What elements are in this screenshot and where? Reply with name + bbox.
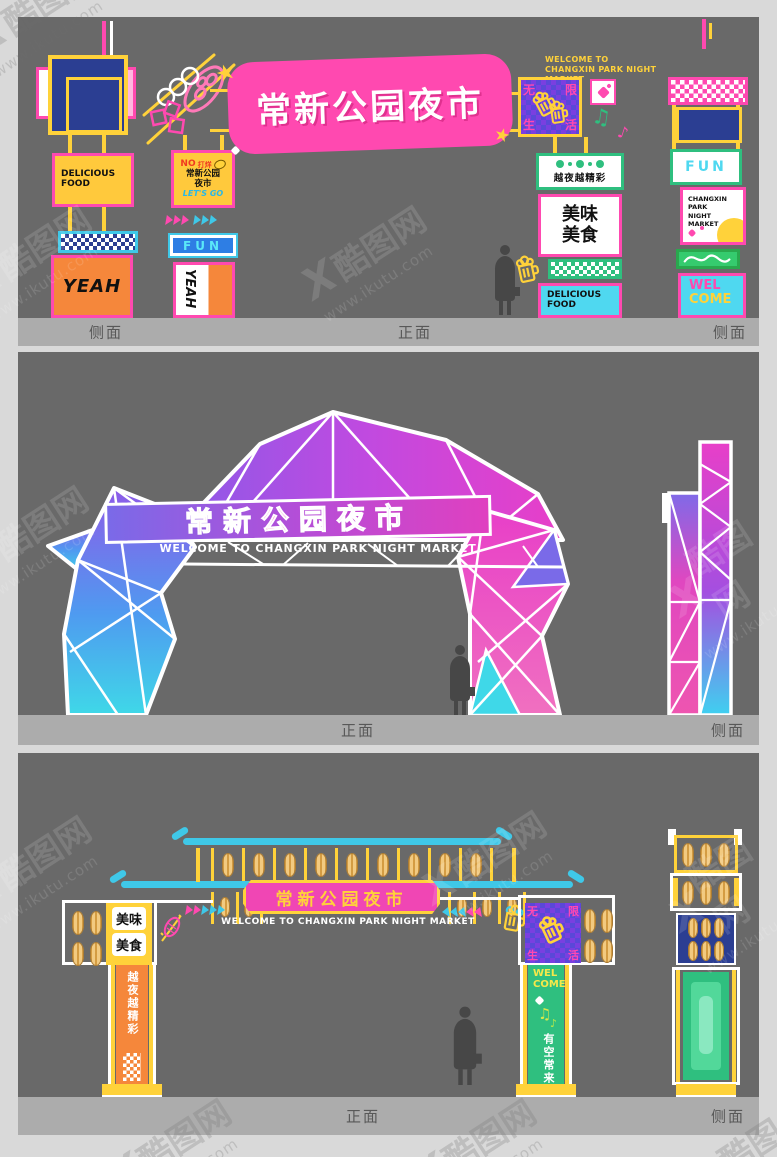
shaft-stripe bbox=[149, 965, 153, 1085]
sign-label: FUN bbox=[685, 159, 727, 175]
sign-label: 活 bbox=[568, 947, 579, 963]
side-green-column bbox=[672, 967, 740, 1085]
plaque-title-sign: 常新公园夜市 bbox=[243, 880, 440, 914]
pillar-base bbox=[516, 1084, 576, 1097]
wuxian-shenghuo-sign: 无 限 生 活 bbox=[518, 77, 582, 137]
plaque-subtitle: WELCOME TO CHANGXIN PARK NIGHT MARKET bbox=[198, 917, 498, 927]
lantern-icon bbox=[315, 853, 327, 877]
banner-label: 越夜越精彩 bbox=[124, 971, 140, 1036]
checker-sign bbox=[668, 77, 748, 105]
welcome-sign: WEL COME bbox=[678, 273, 746, 318]
dot-icon bbox=[700, 226, 704, 230]
sign-label: 无 bbox=[527, 903, 538, 919]
beam bbox=[440, 897, 520, 900]
dot-icon bbox=[596, 160, 604, 168]
pole bbox=[220, 135, 224, 151]
sign-label: 美味 bbox=[562, 205, 598, 226]
watermark-x-icon: X bbox=[0, 860, 11, 919]
sign-label: 生 bbox=[523, 116, 535, 133]
lantern-icon bbox=[584, 939, 596, 963]
checker-strip bbox=[58, 231, 138, 253]
lantern-icon bbox=[688, 918, 698, 938]
lantern-icon bbox=[584, 909, 596, 933]
lantern-icon bbox=[408, 853, 420, 877]
sign-label: DELICIOUS FOOD bbox=[61, 170, 121, 190]
welcome-banner: WEL COME ♫ ♪ 有空常来 bbox=[528, 965, 564, 1085]
watermark-x-icon: X bbox=[402, 1143, 456, 1157]
person-silhouette bbox=[495, 245, 515, 315]
lantern-cell bbox=[242, 848, 273, 884]
meiwei-banner: 美味 美食 bbox=[106, 903, 152, 965]
lantern-icon bbox=[700, 881, 712, 905]
dot-icon bbox=[588, 162, 592, 166]
sign-label: CHANGXIN bbox=[688, 195, 743, 203]
music-note-icon: ♪ bbox=[550, 1017, 557, 1030]
view-label-front: 正面 bbox=[346, 1106, 380, 1127]
view-label-front: 正面 bbox=[398, 322, 432, 343]
sign-label: NIGHT MARKET bbox=[688, 212, 743, 229]
shaft-stripe bbox=[523, 965, 527, 1085]
lantern-icon bbox=[682, 881, 694, 905]
arch-drawing: 常新公园夜市 WELCOME TO CHANGXIN PARK NIGHT MA… bbox=[18, 352, 759, 715]
lantern-icon bbox=[682, 843, 694, 867]
lantern-icon bbox=[718, 881, 730, 905]
sparkle-icon bbox=[688, 229, 696, 237]
pole bbox=[183, 135, 187, 151]
beam bbox=[157, 900, 213, 903]
design-board: DELICIOUS FOOD YEAH bbox=[0, 0, 777, 1157]
yueye-banner: 越夜越精彩 bbox=[116, 965, 148, 1085]
person-silhouette bbox=[454, 1007, 476, 1085]
sign-label: PARK bbox=[688, 203, 743, 211]
lantern-icon bbox=[90, 942, 102, 966]
lantern-cell bbox=[335, 848, 366, 884]
squiggle-strip bbox=[676, 249, 740, 269]
wave-icon bbox=[681, 253, 735, 266]
lantern-icon bbox=[482, 897, 492, 917]
fun-sign: FUN bbox=[168, 233, 238, 258]
no-dayang-sign: NO 打烊 常新公园 夜市 LET'S GO bbox=[171, 150, 235, 208]
yeah-vertical-sign: YEAH bbox=[173, 262, 235, 318]
lantern-icon bbox=[470, 853, 482, 877]
dot-icon bbox=[576, 160, 584, 168]
roof-tier1 bbox=[183, 838, 501, 845]
dot-icon bbox=[556, 160, 564, 168]
sign-label: DELICIOUS FOOD bbox=[547, 291, 609, 311]
checker-deco bbox=[123, 1053, 141, 1081]
sign-label: YEAH bbox=[63, 276, 121, 297]
lantern-icon bbox=[601, 909, 613, 933]
lantern-icon bbox=[714, 918, 724, 938]
lantern-grid bbox=[72, 911, 108, 967]
lantern-grid bbox=[584, 909, 618, 965]
lantern-icon bbox=[439, 853, 451, 877]
beer-mug-icon bbox=[533, 911, 571, 953]
pole bbox=[68, 135, 72, 155]
lantern-icon bbox=[718, 843, 730, 867]
arrow-chevrons bbox=[165, 215, 218, 225]
watermark-x-icon: X bbox=[0, 5, 16, 64]
dots-row bbox=[556, 160, 604, 168]
sign-label: 限 bbox=[568, 903, 579, 919]
sign-label: LET'S GO bbox=[183, 189, 223, 198]
wuxian-shenghuo-sign: 无 限 生 活 bbox=[525, 903, 581, 963]
view-label-side: 侧面 bbox=[89, 322, 123, 343]
lantern-icon bbox=[90, 911, 102, 935]
panel-top-pop-gate: DELICIOUS FOOD YEAH bbox=[18, 17, 759, 318]
lantern-icon bbox=[346, 853, 358, 877]
lantern-icon bbox=[701, 918, 711, 938]
pole bbox=[102, 207, 106, 231]
arrow-chevrons bbox=[441, 907, 482, 917]
shaft-stripe bbox=[673, 878, 678, 906]
blue-billboard-inner bbox=[66, 77, 122, 133]
lantern-icon bbox=[72, 911, 84, 935]
side-blue-box bbox=[676, 913, 736, 965]
shaft-stripe bbox=[111, 965, 115, 1085]
sign-label: 越夜越精彩 bbox=[554, 170, 607, 184]
sparkle-icon bbox=[606, 83, 612, 89]
side-roof-box1 bbox=[674, 835, 738, 873]
lantern-cell bbox=[397, 848, 428, 884]
title-label: 常新公园夜市 bbox=[276, 885, 408, 910]
view-label-side: 侧面 bbox=[713, 322, 747, 343]
watermark-x-icon: X bbox=[97, 1143, 151, 1157]
chevron-icon bbox=[209, 215, 218, 225]
lantern-icon bbox=[601, 939, 613, 963]
pole bbox=[709, 23, 712, 39]
view-label-side: 侧面 bbox=[711, 1106, 745, 1127]
pillar-base bbox=[102, 1084, 162, 1097]
lantern-cell bbox=[428, 848, 459, 884]
welcome-line: WELCOME TO bbox=[545, 55, 695, 65]
banner-label: WEL bbox=[533, 969, 564, 980]
pole bbox=[584, 137, 588, 153]
yueye-sign: 越夜越精彩 bbox=[536, 153, 624, 190]
caption-strip-2: 正面 侧面 bbox=[18, 715, 759, 745]
banner-label: 美食 bbox=[112, 933, 146, 956]
checker-strip bbox=[548, 259, 622, 279]
lantern-icon bbox=[688, 941, 698, 961]
sign-label: 夜市 bbox=[194, 180, 211, 190]
beer-mug-icon bbox=[545, 99, 571, 132]
pillar-base bbox=[676, 1084, 736, 1097]
sign-label: 生 bbox=[527, 947, 538, 963]
dot-icon bbox=[568, 162, 572, 166]
delicious-food-sign: DELICIOUS FOOD bbox=[538, 283, 622, 318]
yeah-sign: YEAH bbox=[51, 255, 133, 318]
pole bbox=[553, 137, 557, 153]
panel-bottom-roof-gate: 常新公园夜市 WELCOME TO CHANGXIN PARK NIGHT MA… bbox=[18, 753, 759, 1097]
lantern-cell bbox=[273, 848, 304, 884]
watermark-x-icon: X bbox=[0, 530, 8, 589]
sign-label: 限 bbox=[565, 81, 577, 98]
pole bbox=[102, 135, 106, 155]
music-note-icon: ♫ bbox=[590, 104, 612, 130]
neon-corn-icon bbox=[158, 911, 184, 947]
meiwei-meishi-sign: 美味 美食 bbox=[538, 194, 622, 257]
sparkle-icon bbox=[535, 996, 545, 1006]
lantern-icon bbox=[377, 853, 389, 877]
sign-label: 美食 bbox=[562, 226, 598, 247]
lantern-icon bbox=[72, 942, 84, 966]
arch-title: 常新公园夜市 bbox=[185, 501, 414, 539]
view-label-front: 正面 bbox=[341, 720, 375, 741]
pole bbox=[68, 207, 72, 231]
person-silhouette bbox=[450, 645, 470, 715]
sparkle-icon bbox=[232, 139, 239, 158]
music-note-icon: ♪ bbox=[615, 122, 631, 143]
sign-label: FUN bbox=[183, 239, 223, 253]
green-layer bbox=[699, 996, 713, 1054]
sign-label: COME bbox=[689, 293, 743, 307]
pole bbox=[512, 848, 516, 882]
lantern-cell bbox=[304, 848, 335, 884]
sparkle-sign bbox=[590, 79, 616, 105]
sign-label: WEL bbox=[689, 279, 743, 293]
caption-strip-1: 侧面 正面 侧面 bbox=[18, 318, 759, 346]
view-label-side: 侧面 bbox=[711, 720, 745, 741]
sign-label: 打烊 bbox=[198, 161, 212, 169]
lantern-icon bbox=[253, 853, 265, 877]
banner-label: 美味 bbox=[112, 907, 146, 930]
pole bbox=[196, 848, 200, 882]
sign-label: YEAH bbox=[182, 269, 197, 308]
lantern-icon bbox=[701, 941, 711, 961]
panel-middle-polygon-arch: 常新公园夜市 WELCOME TO CHANGXIN PARK NIGHT MA… bbox=[18, 352, 759, 715]
lantern-icon bbox=[714, 941, 724, 961]
pink-pole bbox=[702, 19, 706, 49]
fun-sign: FUN bbox=[670, 149, 742, 185]
delicious-food-sign: DELICIOUS FOOD bbox=[52, 153, 134, 207]
lantern-icon bbox=[284, 853, 296, 877]
side-roof-box2 bbox=[670, 873, 742, 911]
lantern-cell bbox=[366, 848, 397, 884]
lantern-cell bbox=[459, 848, 493, 884]
watermark-x-icon: X bbox=[0, 250, 11, 309]
lantern-icon bbox=[700, 843, 712, 867]
changxin-park-sign: CHANGXIN PARK NIGHT MARKET bbox=[680, 187, 746, 245]
shaft-stripe bbox=[734, 878, 739, 906]
caption-strip-3: 正面 侧面 bbox=[18, 1097, 759, 1135]
shaft-stripe bbox=[732, 970, 736, 1082]
banner-label: 有空常来 bbox=[540, 1033, 556, 1085]
lantern-row bbox=[211, 848, 493, 884]
arch-subtitle: WELCOME TO CHANGXIN PARK NIGHT MARKET bbox=[159, 542, 476, 555]
shaft-stripe bbox=[676, 970, 680, 1082]
blue-billboard bbox=[676, 107, 742, 143]
lantern-icon bbox=[222, 853, 234, 877]
lantern-cell bbox=[211, 848, 242, 884]
banner-label: COME bbox=[533, 980, 564, 991]
title-label: 常新公园夜市 bbox=[255, 75, 485, 134]
main-title-sign: 常新公园夜市 bbox=[226, 53, 513, 155]
chevron-icon bbox=[181, 215, 190, 225]
arrow-chevrons bbox=[185, 905, 226, 915]
